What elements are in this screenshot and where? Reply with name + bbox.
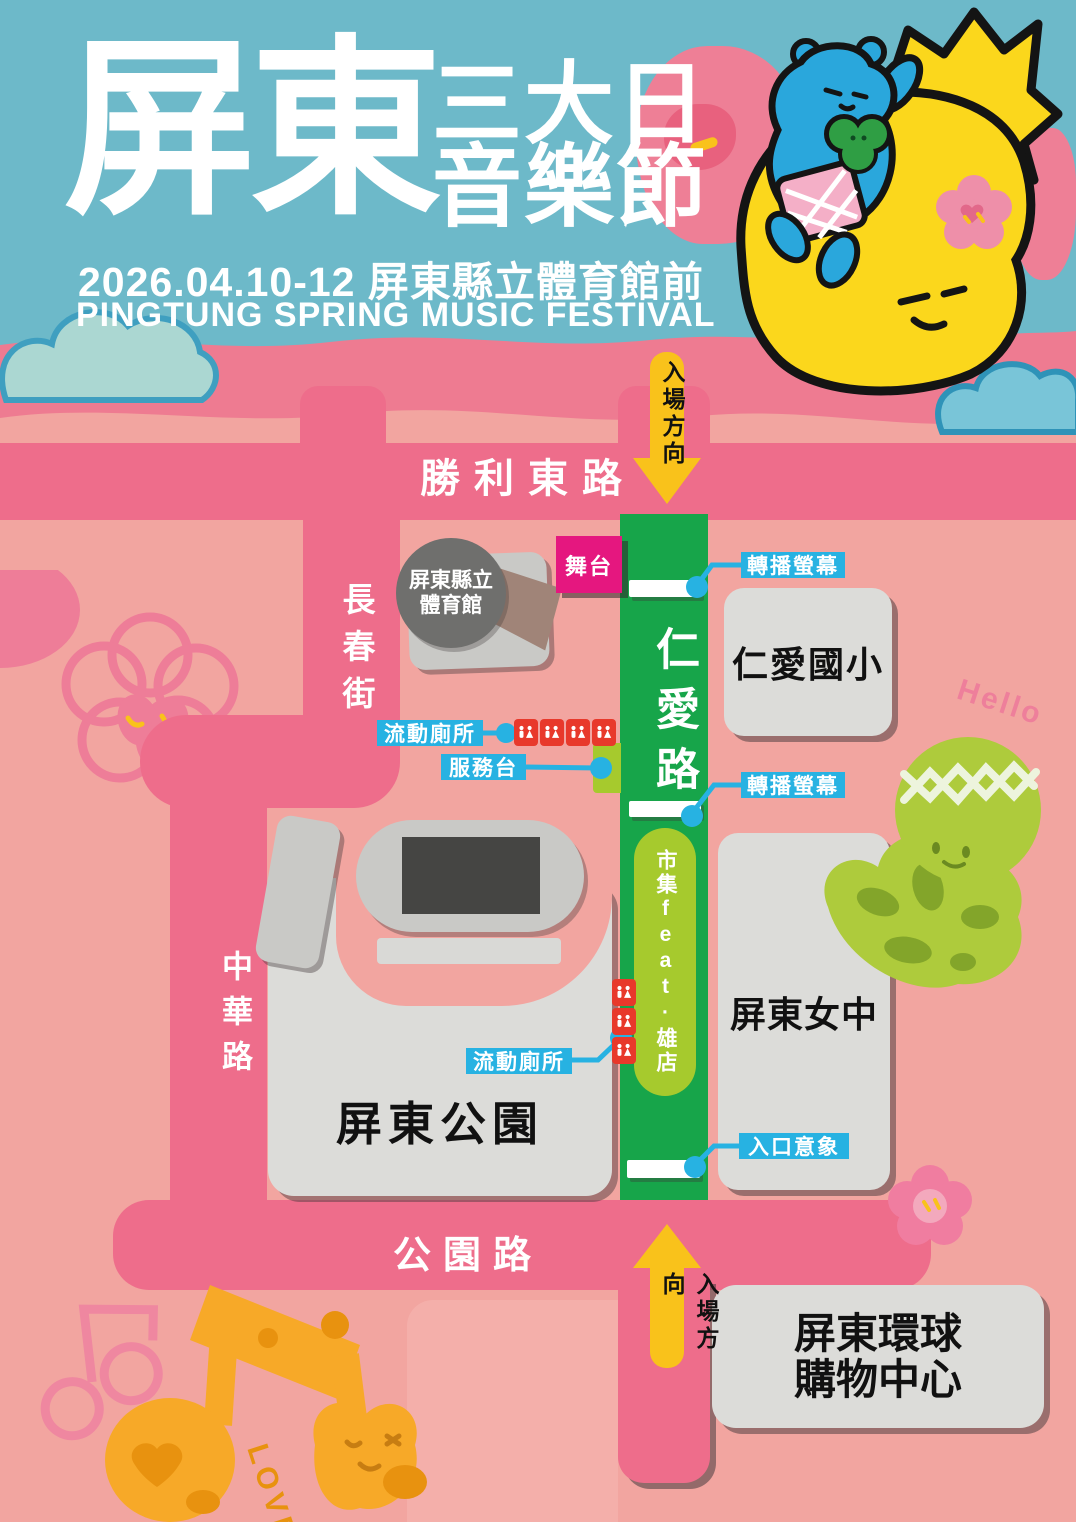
stadium-label-line2: 體育館 xyxy=(409,593,493,618)
park-path xyxy=(377,938,561,964)
corner-flower-icon xyxy=(880,1158,980,1256)
love-text: LOVE xyxy=(240,1440,303,1522)
market-zone: 市集feat·雄店 xyxy=(634,828,696,1096)
park-pool-water xyxy=(402,837,540,914)
tag-broadcast-screen: 轉播螢幕 xyxy=(741,552,845,578)
poster-title-sub-line1: 三大日 xyxy=(432,64,708,147)
global-mall-line1: 屏東環球 xyxy=(794,1311,962,1356)
toilet-icon xyxy=(612,1008,636,1035)
tag-entrance-gate: 入口意象 xyxy=(739,1133,849,1159)
road-label-shengli: 勝利東路 xyxy=(420,446,636,504)
entry-arrow-north: 入場方向 xyxy=(633,352,701,504)
market-label: 市集feat·雄店 xyxy=(650,849,680,1075)
arrow-up-icon xyxy=(633,1224,701,1268)
entrance-gate-marker xyxy=(627,1160,700,1178)
music-notes-icon: LOVE xyxy=(15,1250,460,1522)
renai-elementary-label: 仁愛國小 xyxy=(732,636,884,688)
tag-portable-toilet: 流動廁所 xyxy=(377,720,483,746)
poster-title-en: PINGTUNG SPRING MUSIC FESTIVAL xyxy=(76,296,716,335)
toilet-icon xyxy=(592,719,616,746)
road-north-stub-left xyxy=(300,386,386,446)
melon-head xyxy=(895,737,1041,883)
tag-portable-toilet: 流動廁所 xyxy=(466,1048,572,1074)
entry-direction-label: 入場方向 xyxy=(655,360,689,468)
stadium-label: 屏東縣立 體育館 xyxy=(409,568,493,618)
stage-label: 舞台 xyxy=(565,549,613,581)
road-label-renai: 仁愛路 xyxy=(641,626,705,806)
toilet-icon xyxy=(514,719,538,746)
stage-box: 舞台 xyxy=(556,536,622,593)
entry-direction-label: 入場方向 xyxy=(655,1272,723,1370)
toilet-icon xyxy=(540,719,564,746)
global-mall-line2: 購物中心 xyxy=(794,1357,962,1402)
service-desk-marker xyxy=(593,743,621,793)
poster-title-sub-line2: 音樂節 xyxy=(432,147,708,230)
tag-service-desk: 服務台 xyxy=(441,754,526,780)
broadcast-screen-marker xyxy=(629,801,701,817)
poster-title-sub: 三大日 音樂節 xyxy=(432,64,708,230)
road-label-zhonghua: 中華路 xyxy=(212,950,257,1085)
toilet-icon-row xyxy=(514,719,616,746)
road-label-changchun: 長春街 xyxy=(332,582,380,723)
toilet-icon-column xyxy=(612,979,636,1064)
stadium-dome: 屏東縣立 體育館 xyxy=(396,538,506,648)
block-global-mall: 屏東環球 購物中心 xyxy=(712,1285,1044,1428)
toilet-icon xyxy=(566,719,590,746)
melon-character-icon xyxy=(808,712,1058,1002)
global-mall-label: 屏東環球 購物中心 xyxy=(794,1311,962,1402)
entry-arrow-south: 入場方向 xyxy=(633,1224,701,1370)
toilet-icon xyxy=(612,1037,636,1064)
broadcast-screen-marker xyxy=(629,580,701,597)
toilet-icon xyxy=(612,979,636,1006)
festival-map-poster: 屏東 三大日 音樂節 2026.04.10-12 屏東縣立體育館前 PINGTU… xyxy=(0,0,1076,1522)
mascot-mango-icon xyxy=(686,2,1071,404)
park-label: 屏東公園 xyxy=(268,1088,612,1154)
stadium-label-line1: 屏東縣立 xyxy=(409,568,493,593)
poster-title-zh: 屏東 xyxy=(64,34,436,226)
